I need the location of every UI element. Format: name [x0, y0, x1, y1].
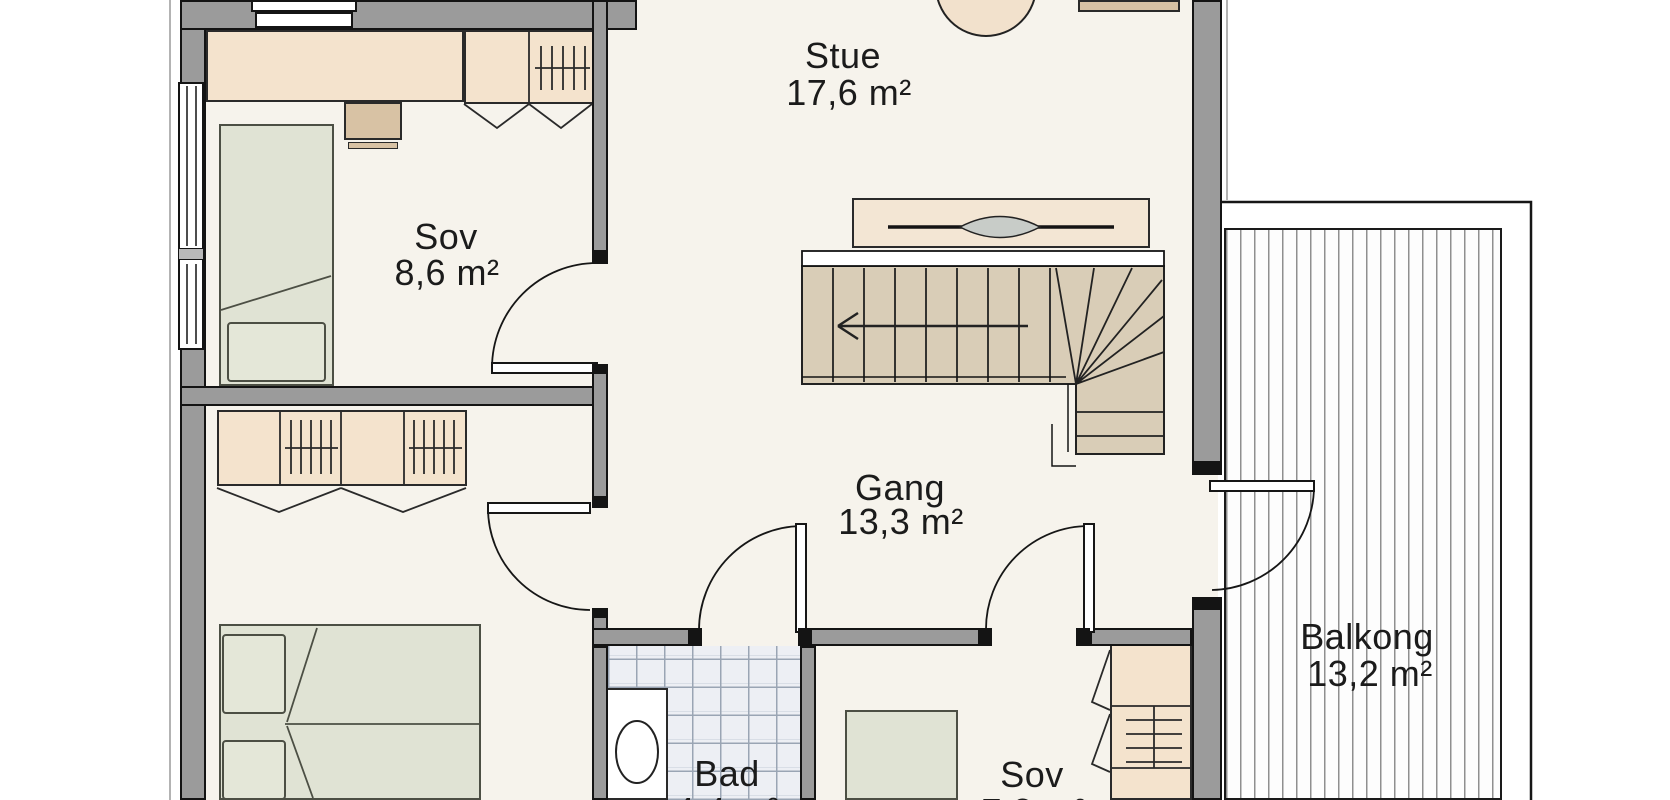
floor-plan: Stue 17,6 m² Sov 8,6 m² Gang 13,3 m² Bad… [0, 0, 1670, 800]
room-label-bad: Bad [694, 753, 760, 795]
staircase [802, 251, 1164, 466]
room-name: Bad [694, 753, 760, 794]
sink [616, 721, 658, 783]
balcony-rail [1222, 202, 1531, 800]
door-balcony [1210, 481, 1314, 590]
room-name: Balkong [1300, 616, 1434, 657]
room-area: 17,6 m² [786, 72, 912, 113]
round-table [936, 0, 1036, 36]
window-glazing [187, 86, 196, 344]
wardrobe-details [217, 32, 1190, 772]
room-area: 7,2 m² [981, 791, 1086, 800]
room-area: 4,4 m² [674, 790, 779, 800]
bed-folds [221, 276, 479, 798]
stair-guard [802, 377, 1076, 466]
stair-landing-edge [802, 251, 1164, 266]
room-area-stue: 17,6 m² [786, 72, 912, 114]
room-name: Sov [1000, 754, 1064, 795]
room-area: 8,6 m² [394, 252, 499, 293]
sideboard-bowl [888, 217, 1114, 238]
room-area-sov1: 8,6 m² [394, 252, 499, 294]
room-area-balkong: 13,2 m² [1307, 653, 1433, 695]
room-area-sov2: 7,2 m² [981, 791, 1086, 800]
door-bad [699, 524, 806, 632]
door-sov1 [492, 263, 597, 373]
room-area: 13,2 m² [1307, 653, 1433, 694]
room-label-stue: Stue [805, 35, 881, 77]
room-name: Stue [805, 35, 881, 76]
room-label-sov2: Sov [1000, 754, 1064, 796]
room-area-bad: 4,4 m² [674, 790, 779, 800]
door-sov2 [986, 524, 1094, 632]
room-label-balkong: Balkong [1300, 616, 1434, 658]
room-area: 13,3 m² [838, 501, 964, 542]
door-bedroom2 [488, 503, 590, 610]
room-name: Sov [414, 216, 478, 257]
room-area-gang: 13,3 m² [838, 501, 964, 543]
